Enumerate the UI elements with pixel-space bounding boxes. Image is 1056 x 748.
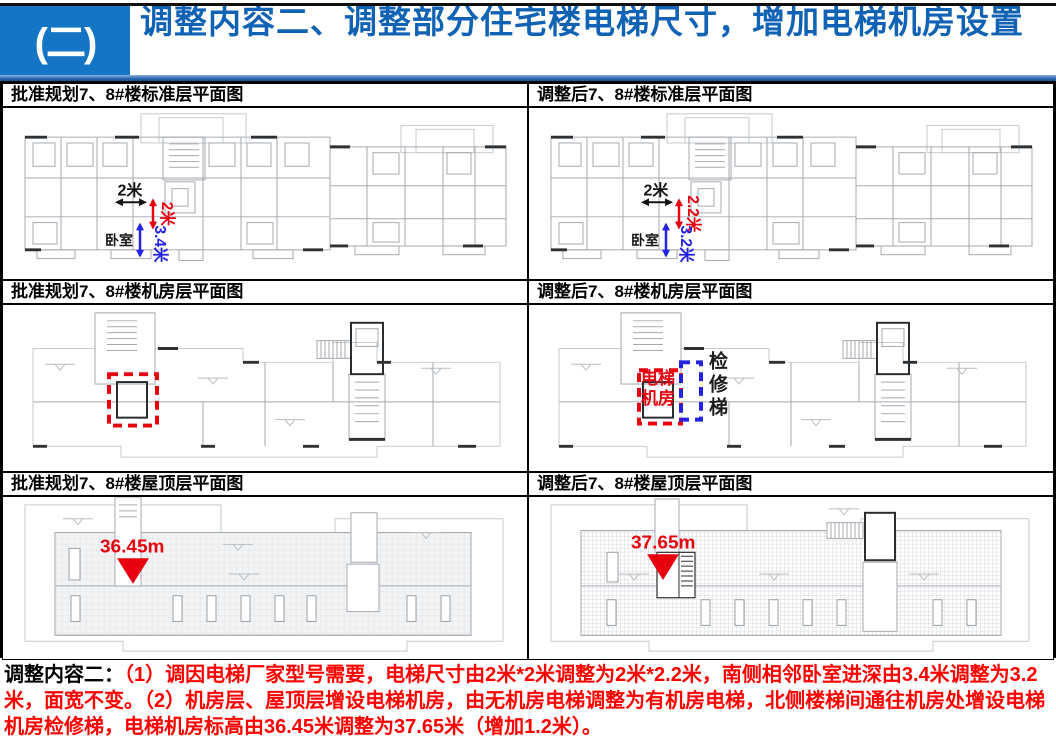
roof-elevation-label: 37.65m [631,532,695,553]
standard-plan-base [25,114,506,261]
panel-roof-adjusted-drawing: 37.65m [529,497,1053,659]
slide-header: (二) 调整内容二、调整部分住宅楼电梯尺寸，增加电梯机房设置 [0,3,1056,75]
machine-plan-base [559,313,1026,457]
adjustment-note: 调整内容二：（1）调因电梯厂家型号需要，电梯尺寸由2米*2米调整为2米*2.2米… [0,658,1056,740]
roof-plan-adjusted: 37.65m [529,497,1053,659]
elevator-width-arrow [641,198,673,206]
bedroom-label: 卧室 [631,232,659,248]
panel-standard-adjusted: 调整后7、8#楼标准层平面图 2米 2.2米 [528,83,1054,280]
floor-plan-machine-approved [3,305,527,471]
page-top-edge [0,3,1056,6]
access-ladder-label: 检修梯 [703,351,730,431]
note-text: （1）调因电梯厂家型号需要，电梯尺寸由2米*2米调整为2米*2.2米，南侧相邻卧… [4,664,1045,738]
roof-plan-approved: 36.45m [3,497,527,659]
elevator-width-label: 2米 [644,181,669,200]
section-badge: (二) [0,3,130,75]
roof-elevation-label: 36.45m [100,536,164,557]
panel-standard-approved: 批准规划7、8#楼标准层平面图 2米 2米 [2,83,528,280]
floor-plan-machine-adjusted [529,305,1053,471]
panel-machine-approved: 批准规划7、8#楼机房层平面图 [2,280,528,472]
note-label: 调整内容二： [4,664,124,686]
panel-standard-adjusted-drawing: 2米 2.2米 [529,108,1053,279]
panel-machine-adjusted-drawing: 电梯机房 检修梯 [529,305,1053,471]
panel-roof-approved-drawing: 36.45m [3,497,527,659]
floor-plan-standard-approved: 2米 2米 [3,108,527,279]
bedroom-depth-arrow [136,223,144,258]
panel-standard-adjusted-title: 调整后7、8#楼标准层平面图 [529,84,1053,108]
panel-roof-adjusted: 调整后7、8#楼屋顶层平面图 [528,472,1054,660]
plan-comparison-grid: 批准规划7、8#楼标准层平面图 2米 2米 [0,81,1056,658]
panel-roof-approved-title: 批准规划7、8#楼屋顶层平面图 [3,473,527,497]
floor-plan-standard-adjusted: 2米 2.2米 [529,108,1053,279]
panel-machine-adjusted: 调整后7、8#楼机房层平面图 电梯机房 检修梯 [528,280,1054,472]
bedroom-depth-arrow [662,223,670,258]
access-ladder-highlight-box [681,362,701,419]
panel-machine-approved-drawing [3,305,527,471]
panel-standard-approved-title: 批准规划7、8#楼标准层平面图 [3,84,527,108]
elevator-width-label: 2米 [118,181,143,200]
elevator-depth-label: 2米 [158,202,177,226]
slide-title: 调整内容二、调整部分住宅楼电梯尺寸，增加电梯机房设置 [130,3,1056,75]
machine-room-label: 电梯机房 [641,369,679,409]
panel-standard-approved-drawing: 2米 2米 [3,108,527,279]
machine-plan-base [33,313,500,457]
elevator-width-arrow [115,198,147,206]
bedroom-depth-label: 3.4米 [151,225,170,262]
dimension-annotations: 2米 2米 [105,181,177,263]
panel-roof-adjusted-title: 调整后7、8#楼屋顶层平面图 [529,473,1053,497]
bedroom-label: 卧室 [105,232,133,248]
panel-machine-approved-title: 批准规划7、8#楼机房层平面图 [3,281,527,305]
dimension-annotations: 2米 2.2米 [631,181,703,263]
bedroom-depth-label: 3.2米 [677,225,696,262]
standard-plan-base [551,114,1032,261]
panel-roof-approved: 批准规划7、8#楼屋顶层平面图 [2,472,528,660]
panel-machine-adjusted-title: 调整后7、8#楼机房层平面图 [529,281,1053,305]
